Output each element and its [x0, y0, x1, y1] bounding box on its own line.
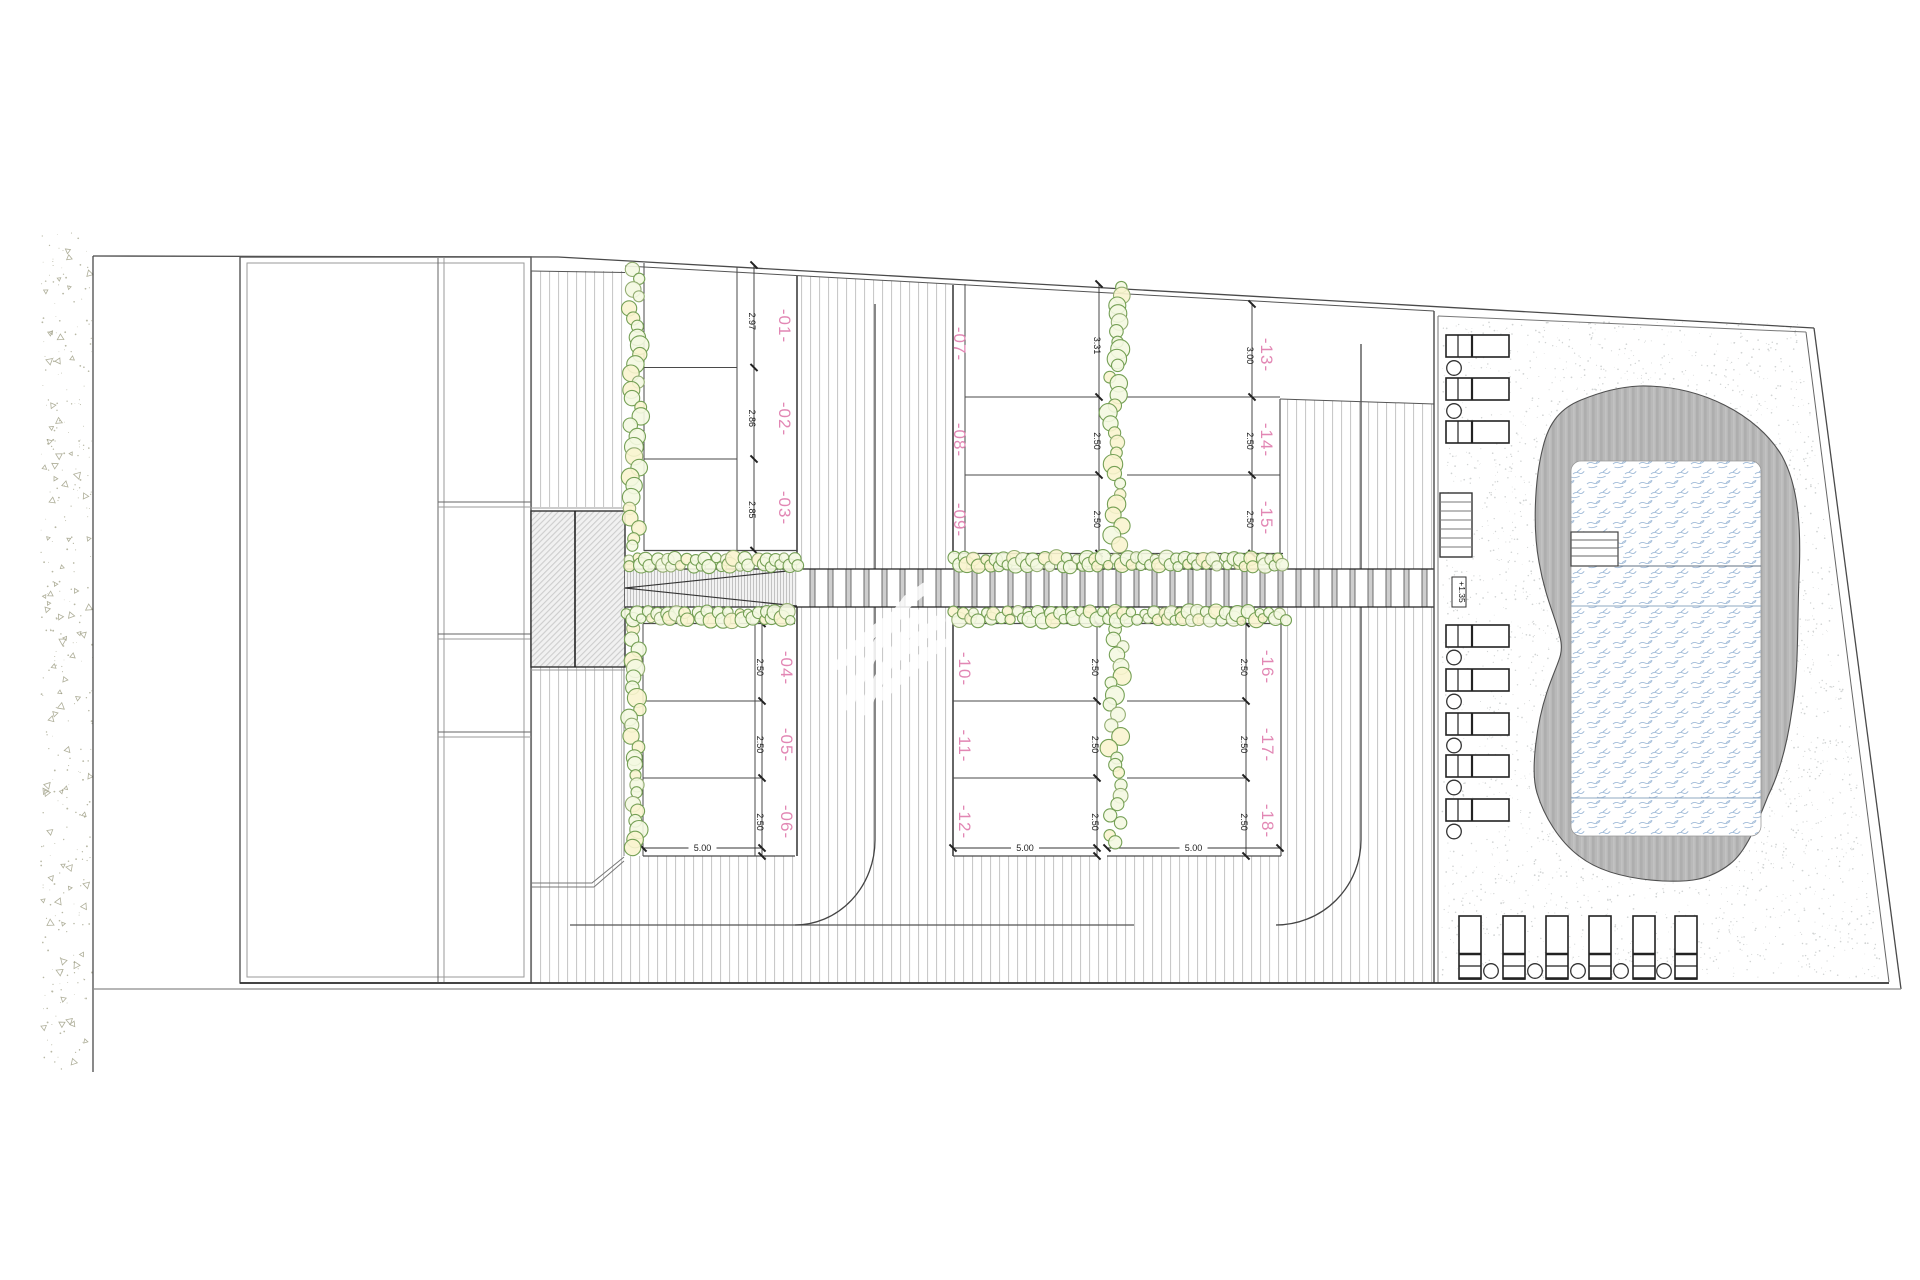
- svg-text:2.50: 2.50: [755, 736, 765, 754]
- svg-text:-15-: -15-: [1257, 501, 1276, 535]
- svg-text:-05-: -05-: [777, 728, 796, 762]
- svg-text:5.00: 5.00: [694, 843, 712, 853]
- svg-text:-17-: -17-: [1258, 728, 1277, 762]
- svg-text:-02-: -02-: [775, 402, 794, 436]
- svg-text:5.00: 5.00: [1016, 843, 1034, 853]
- svg-text:-12-: -12-: [955, 805, 974, 839]
- svg-text:-11-: -11-: [955, 730, 974, 763]
- svg-text:2.50: 2.50: [1090, 658, 1100, 676]
- svg-text:2.50: 2.50: [1090, 736, 1100, 754]
- svg-text:-18-: -18-: [1258, 804, 1277, 838]
- svg-text:-16-: -16-: [1258, 650, 1277, 684]
- svg-text:2.97: 2.97: [747, 312, 757, 330]
- svg-text:2.50: 2.50: [1245, 432, 1255, 450]
- svg-text:2.50: 2.50: [755, 658, 765, 676]
- svg-text:2.50: 2.50: [1239, 813, 1249, 831]
- svg-text:-14-: -14-: [1257, 423, 1276, 457]
- svg-text:-03-: -03-: [775, 491, 794, 525]
- svg-text:2.50: 2.50: [1092, 432, 1102, 450]
- svg-text:2.86: 2.86: [747, 409, 757, 427]
- svg-text:-06-: -06-: [777, 805, 796, 839]
- svg-text:2.50: 2.50: [755, 813, 765, 831]
- svg-text:2.50: 2.50: [1092, 510, 1102, 528]
- svg-text:+1.35: +1.35: [1457, 581, 1467, 603]
- svg-text:3.31: 3.31: [1092, 337, 1102, 355]
- svg-text:-04-: -04-: [777, 651, 796, 685]
- svg-text:2.50: 2.50: [1239, 658, 1249, 676]
- svg-text:2.85: 2.85: [747, 501, 757, 519]
- svg-text:2.50: 2.50: [1090, 813, 1100, 831]
- svg-text:-10-: -10-: [955, 652, 974, 686]
- svg-text:-01-: -01-: [775, 309, 794, 343]
- svg-text:3.00: 3.00: [1245, 347, 1255, 365]
- svg-text:2.50: 2.50: [1245, 510, 1255, 528]
- svg-text:2.50: 2.50: [1239, 736, 1249, 754]
- svg-text:-08-: -08-: [950, 423, 969, 457]
- svg-text:5.00: 5.00: [1185, 843, 1203, 853]
- svg-text:-13-: -13-: [1257, 338, 1276, 372]
- svg-text:-07-: -07-: [950, 327, 969, 361]
- svg-text:-09-: -09-: [950, 503, 969, 537]
